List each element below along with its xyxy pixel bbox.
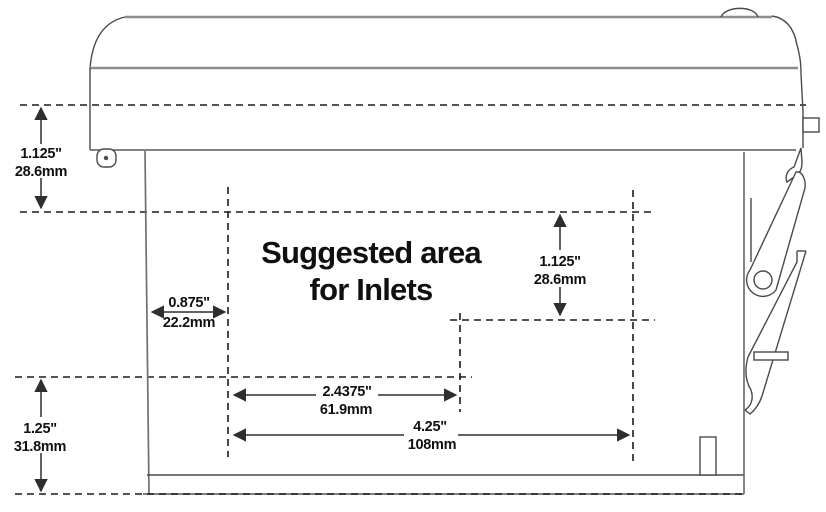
diagram-canvas: 1.125" 28.6mm 1.25" 31.8mm 0.875" 22.2mm… (0, 0, 826, 512)
label-inlet-area-height-mm: 28.6mm (534, 272, 586, 288)
latch-catch-bar (754, 352, 788, 360)
hinge (97, 149, 116, 167)
label-base-height-mm: 31.8mm (14, 439, 66, 455)
enclosure-lid (90, 8, 819, 150)
annotation-line-1: Suggested area (261, 235, 482, 270)
enclosure-base (15, 151, 744, 494)
label-inlet-full-width-inches: 4.25" (413, 419, 447, 435)
dimension-labels: 1.125" 28.6mm 1.25" 31.8mm 0.875" 22.2mm… (13, 144, 589, 455)
latch-tail-outer (745, 357, 752, 410)
label-inlet-inner-width-mm: 61.9mm (320, 402, 372, 418)
label-inlet-area-height-inches: 1.125" (539, 254, 580, 270)
latch-pivot (754, 271, 772, 289)
hinge-pin (104, 156, 108, 160)
label-left-inset-inches: 0.875" (168, 295, 209, 311)
lid-top-bump (721, 8, 758, 17)
label-left-inset-mm: 22.2mm (163, 315, 215, 331)
label-lid-height-inches: 1.125" (20, 146, 61, 162)
inlet-area-annotation: Suggested area for Inlets (261, 235, 482, 307)
label-base-height-inches: 1.25" (23, 421, 57, 437)
label-lid-height-mm: 28.6mm (15, 164, 67, 180)
lid-right-corner-curve (772, 16, 803, 148)
lid-right-tab (803, 118, 819, 132)
label-inlet-inner-width-inches: 2.4375" (322, 384, 371, 400)
latch-assembly (745, 148, 806, 414)
lid-left-corner-curve (90, 17, 125, 69)
base-left-wall (145, 151, 149, 493)
base-inner-rib (700, 437, 716, 475)
annotation-line-2: for Inlets (310, 272, 433, 307)
label-inlet-full-width-mm: 108mm (408, 437, 456, 453)
enclosure-dimension-diagram: 1.125" 28.6mm 1.25" 31.8mm 0.875" 22.2mm… (0, 0, 826, 512)
latch-tail-inner (745, 396, 762, 414)
